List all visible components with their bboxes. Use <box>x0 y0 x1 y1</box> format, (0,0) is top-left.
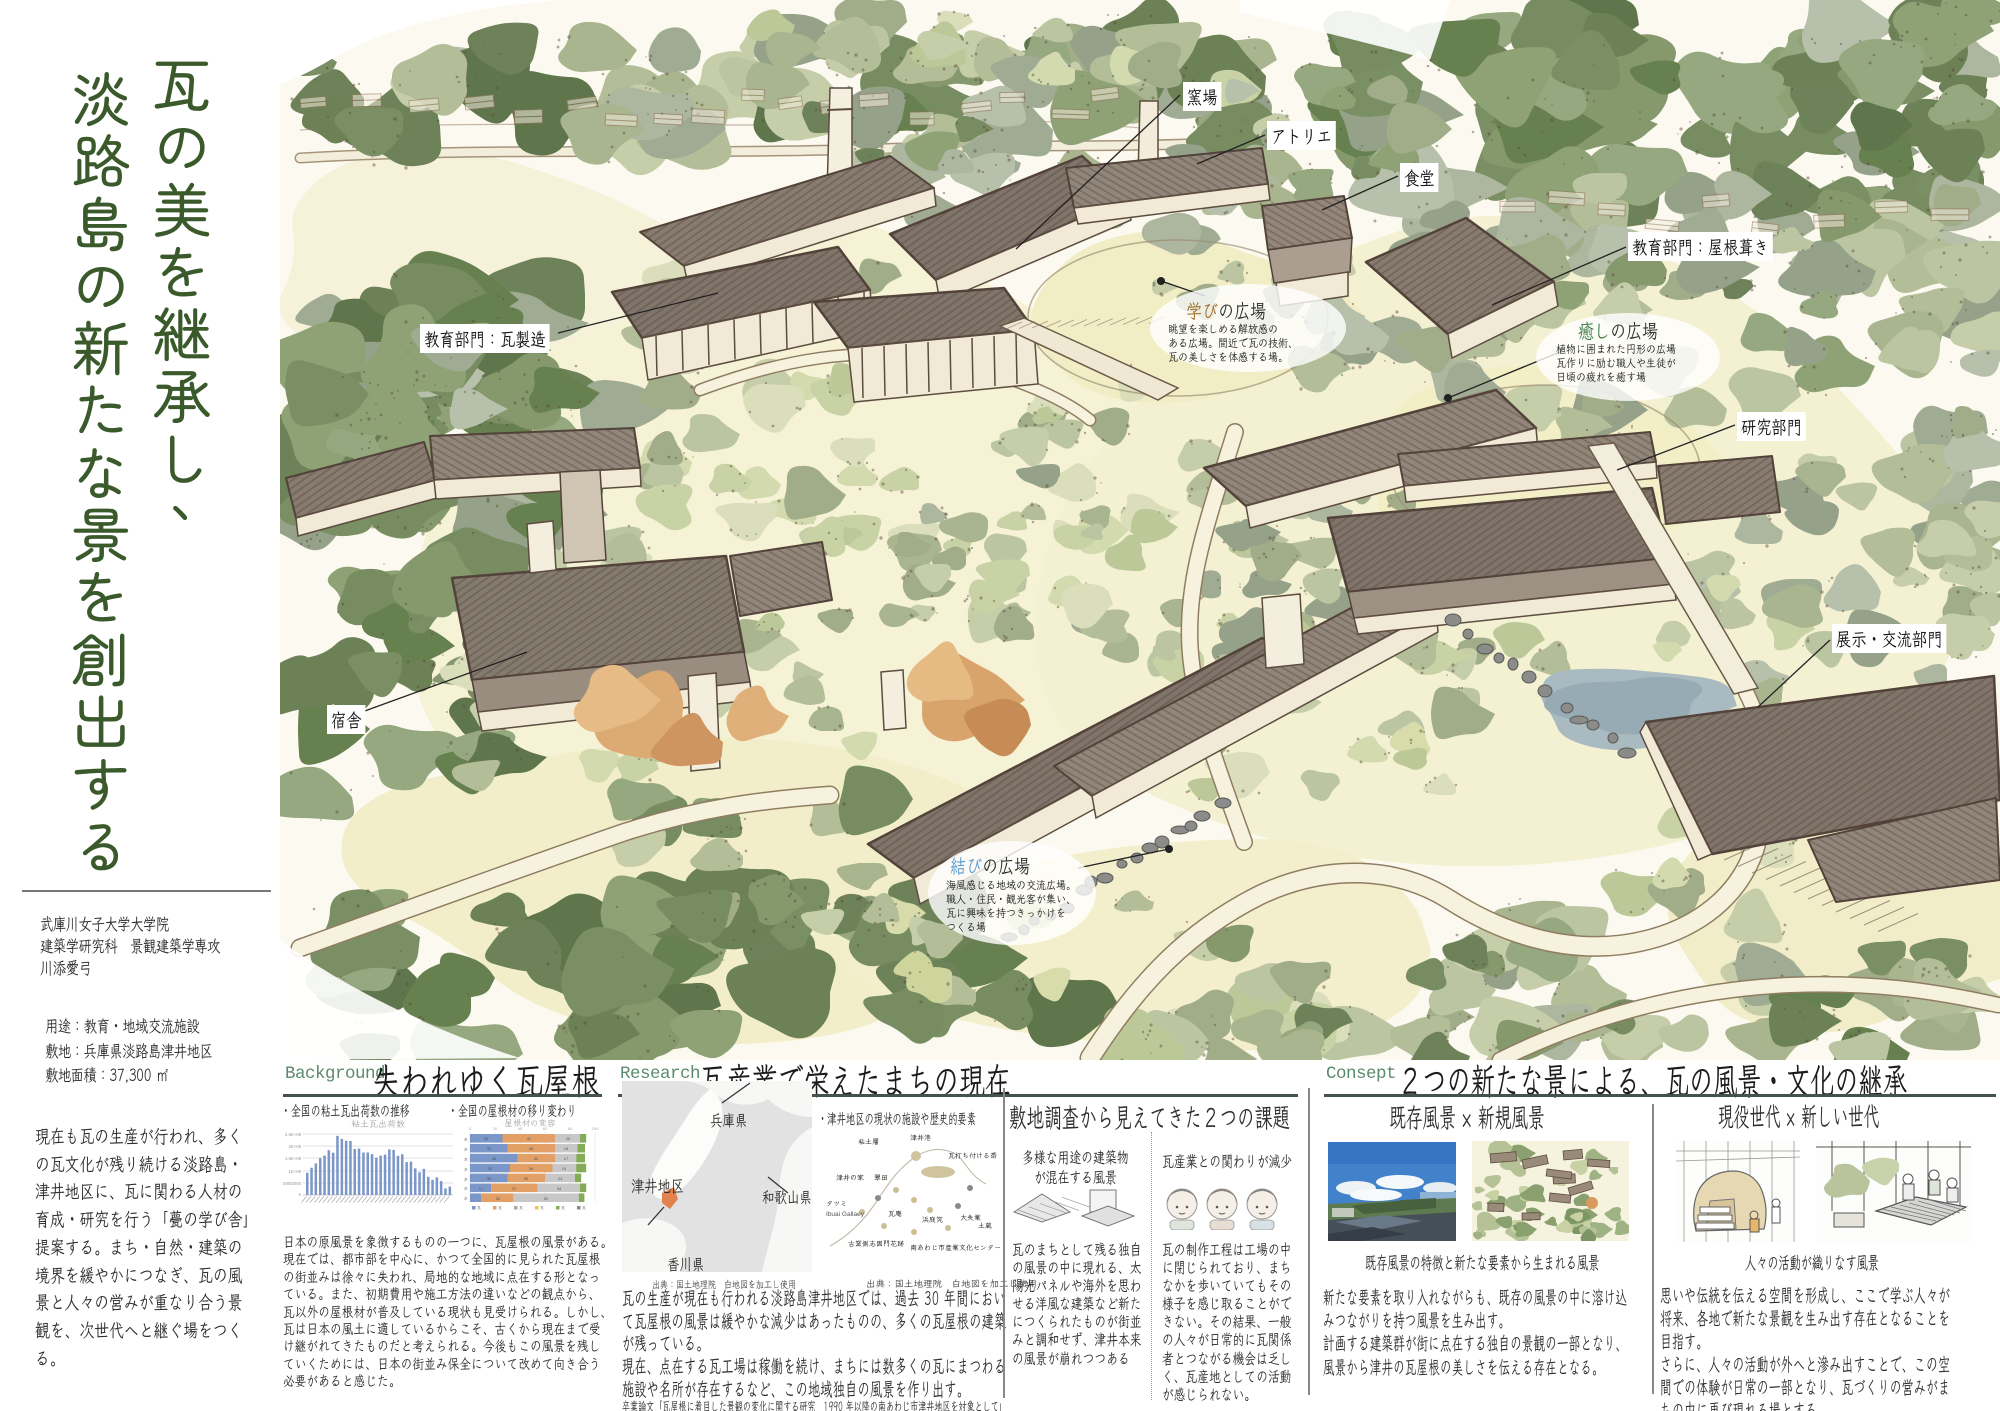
svg-text:津井の家: 津井の家 <box>836 1173 864 1183</box>
svg-text:32: 32 <box>488 1166 493 1171</box>
svg-text:30: 30 <box>487 1146 492 1151</box>
svg-text:南あわじ市産業文化センター: 南あわじ市産業文化センター <box>910 1243 1001 1253</box>
svg-text:42: 42 <box>527 1136 532 1141</box>
svg-text:40: 40 <box>518 1126 523 1131</box>
svg-text:19: 19 <box>562 1166 567 1171</box>
svg-text:80: 80 <box>568 1126 573 1131</box>
svg-text:20: 20 <box>566 1136 571 1141</box>
svg-text:26: 26 <box>484 1136 489 1141</box>
svg-text:60: 60 <box>543 1126 548 1131</box>
svg-text:100: 100 <box>592 1126 599 1131</box>
svg-text:20: 20 <box>493 1126 498 1131</box>
svg-text:0: 0 <box>469 1126 472 1131</box>
svg-text:17: 17 <box>479 1186 484 1191</box>
svg-text:0: 0 <box>299 1192 302 1197</box>
svg-text:土蔵: 土蔵 <box>978 1221 992 1231</box>
svg-text:30: 30 <box>487 1176 492 1181</box>
svg-text:18: 18 <box>564 1146 569 1151</box>
svg-text:年: 年 <box>464 1196 468 1202</box>
svg-text:38: 38 <box>492 1156 497 1161</box>
svg-text:37: 37 <box>512 1186 517 1191</box>
svg-text:年: 年 <box>464 1177 468 1183</box>
svg-text:瓦: 瓦 <box>519 1206 523 1211</box>
svg-text:年: 年 <box>464 1137 468 1143</box>
svg-text:24: 24 <box>558 1176 563 1181</box>
svg-text:1.5E+09: 1.5E+09 <box>285 1156 302 1161</box>
svg-text:屋根材の変容: 屋根材の変容 <box>503 1117 556 1129</box>
svg-text:34: 34 <box>529 1166 534 1171</box>
svg-text:26: 26 <box>496 1196 501 1201</box>
svg-text:年: 年 <box>464 1167 468 1173</box>
svg-text:52: 52 <box>544 1196 549 1201</box>
svg-text:年: 年 <box>464 1147 468 1153</box>
svg-text:34: 34 <box>557 1186 562 1191</box>
svg-text:津井港: 津井港 <box>910 1133 932 1143</box>
svg-text:瓦: 瓦 <box>561 1206 565 1211</box>
svg-text:古窯側志固門花跡: 古窯側志固門花跡 <box>848 1239 904 1249</box>
svg-text:17: 17 <box>564 1156 569 1161</box>
svg-text:500000000: 500000000 <box>283 1181 302 1186</box>
svg-text:瓦: 瓦 <box>540 1206 544 1211</box>
svg-text:粘土瓦出荷数: 粘土瓦出荷数 <box>351 1117 405 1130</box>
svg-text:浜庭究: 浜庭究 <box>922 1215 943 1225</box>
svg-text:瓦打ち付ける斎: 瓦打ち付ける斎 <box>948 1151 997 1161</box>
svg-text:瓦庵: 瓦庵 <box>888 1209 902 1219</box>
svg-text:瓦: 瓦 <box>477 1206 481 1211</box>
svg-text:翠田: 翠田 <box>874 1173 888 1183</box>
svg-text:1E+09: 1E+09 <box>288 1169 301 1174</box>
svg-text:年: 年 <box>464 1186 468 1192</box>
svg-text:2.5E+09: 2.5E+09 <box>285 1132 302 1137</box>
svg-text:Ibuai Gallaey: Ibuai Gallaey <box>826 1211 865 1218</box>
svg-text:瓦: 瓦 <box>498 1206 502 1211</box>
svg-text:タツミ: タツミ <box>826 1199 847 1209</box>
svg-text:瓦: 瓦 <box>582 1206 586 1211</box>
svg-text:2E+09: 2E+09 <box>288 1144 301 1149</box>
svg-text:30: 30 <box>534 1156 539 1161</box>
svg-text:年: 年 <box>464 1157 468 1163</box>
svg-text:30: 30 <box>524 1176 529 1181</box>
svg-text:粘土層: 粘土層 <box>858 1137 879 1147</box>
svg-text:38: 38 <box>529 1146 534 1151</box>
